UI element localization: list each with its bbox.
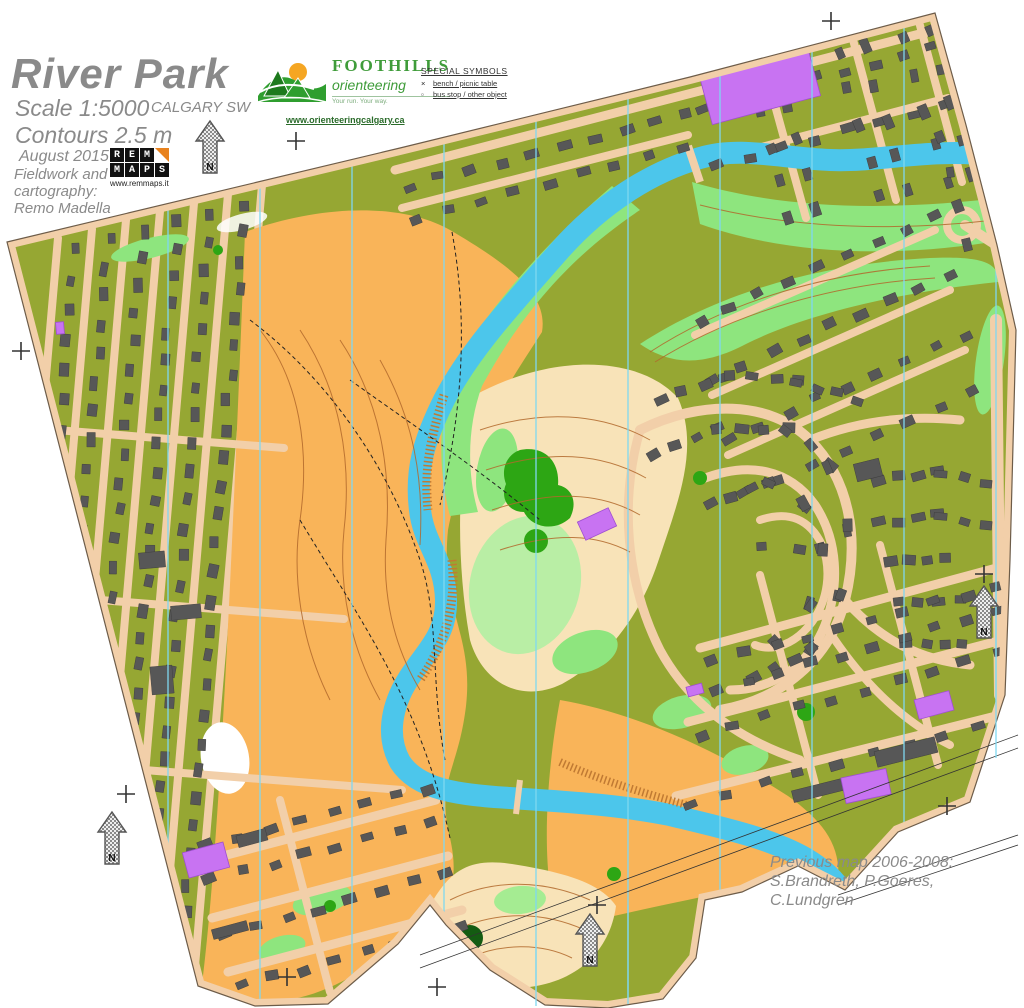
previous-map-credit: Previous map 2006-2008:S.Brandreth, P.Go… <box>770 853 953 910</box>
map-scale: Scale 1:5000 <box>15 95 149 122</box>
registration-cross <box>12 342 30 360</box>
rem-tile: M <box>140 148 154 162</box>
rem-maps-url: www.remmaps.it <box>110 179 182 188</box>
north-arrow-icon <box>196 121 224 173</box>
special-symbols-legend: SPECIAL SYMBOLS ×bench / picnic table ▫b… <box>421 66 508 99</box>
rem-maps-logo: R E M M A P S www.remmaps.it <box>110 148 182 188</box>
map-contours: Contours 2.5 m <box>15 122 172 149</box>
legend-item: ▫bus stop / other object <box>421 90 508 99</box>
map-region: CALGARY SW <box>151 99 250 116</box>
foothills-url: www.orienteeringcalgary.ca <box>286 115 405 125</box>
north-arrow-icon <box>98 812 126 864</box>
rem-tile: M <box>110 163 124 177</box>
credit-line-2: cartography: <box>14 183 97 200</box>
legend-heading: SPECIAL SYMBOLS <box>421 66 508 76</box>
rem-tile: A <box>125 163 139 177</box>
legend-item-label: bus stop / other object <box>433 90 507 99</box>
map-sheet: N <box>0 0 1024 1008</box>
rem-logo-triangle <box>155 148 169 162</box>
bench-symbol: × <box>421 79 433 88</box>
legend-item-label: bench / picnic table <box>433 79 497 88</box>
registration-cross <box>428 978 446 996</box>
bus-stop-symbol: ▫ <box>421 90 433 99</box>
rem-tile: R <box>110 148 124 162</box>
registration-cross <box>822 12 840 30</box>
map-date: August 2015 <box>19 148 109 166</box>
rem-tile: P <box>140 163 154 177</box>
registration-cross <box>117 785 135 803</box>
rem-tile: S <box>155 163 169 177</box>
legend-item: ×bench / picnic table <box>421 79 508 88</box>
rem-tile: E <box>125 148 139 162</box>
foothills-logo-icon <box>256 56 328 112</box>
registration-cross <box>287 132 305 150</box>
credit-line-1: Fieldwork and <box>14 166 107 183</box>
map-title: River Park <box>11 50 229 98</box>
credit-line-3: Remo Madella <box>14 200 111 217</box>
